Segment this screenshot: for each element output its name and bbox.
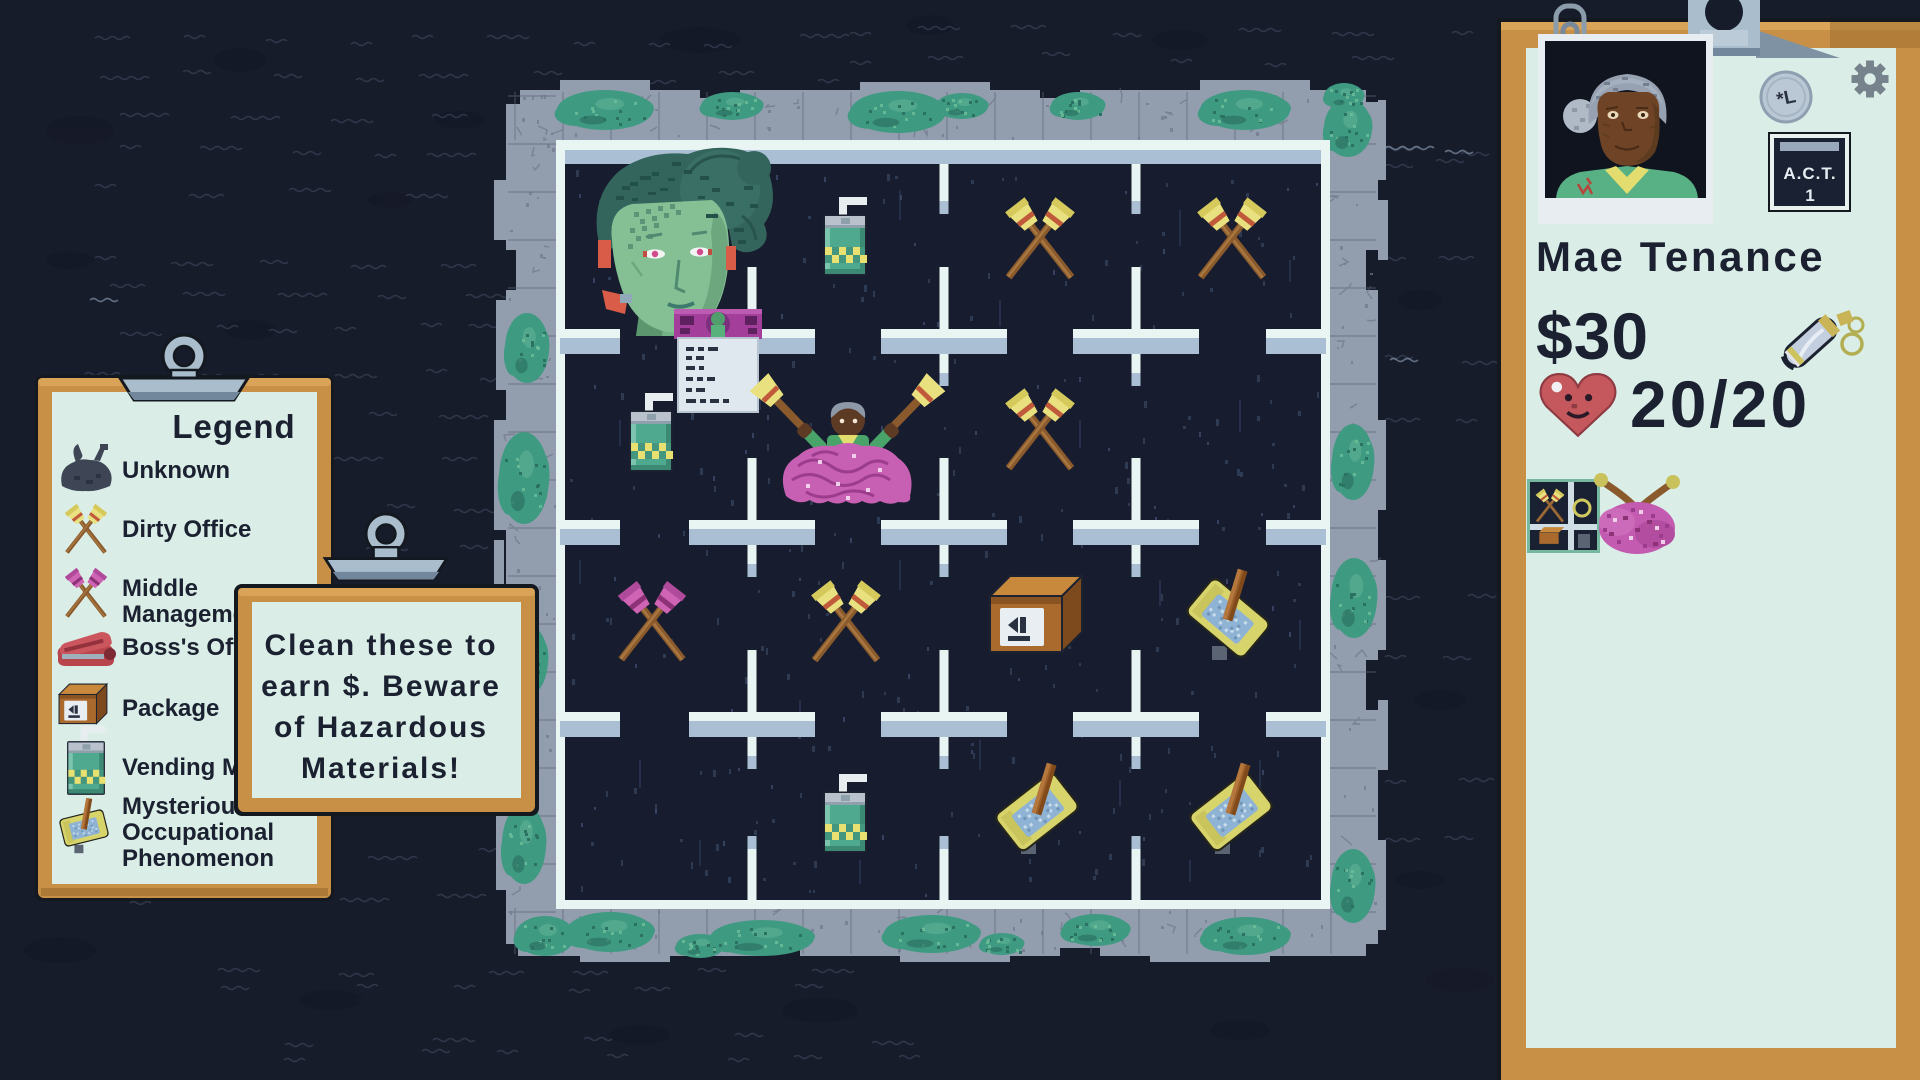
svg-text:Occupational: Occupational	[122, 819, 274, 846]
svg-text:earn $. Beware: earn $. Beware	[261, 670, 501, 703]
svg-text:Legend: Legend	[172, 408, 295, 445]
svg-text:20/20: 20/20	[1630, 367, 1810, 441]
svg-text:Mysterious: Mysterious	[122, 793, 249, 820]
svg-text:A.C.T.: A.C.T.	[1783, 164, 1836, 183]
svg-text:Package: Package	[122, 695, 219, 722]
svg-text:of Hazardous: of Hazardous	[274, 711, 488, 744]
svg-text:Mae Tenance: Mae Tenance	[1536, 233, 1825, 280]
svg-text:Phenomenon: Phenomenon	[122, 845, 274, 872]
svg-text:Clean these to: Clean these to	[264, 629, 497, 662]
svg-text:Unknown: Unknown	[122, 457, 230, 484]
svg-text:Dirty Office: Dirty Office	[122, 516, 251, 543]
svg-text:1: 1	[1805, 186, 1814, 205]
svg-text:$30: $30	[1536, 299, 1649, 373]
svg-text:Middle: Middle	[122, 575, 198, 602]
svg-text:Materials!: Materials!	[301, 752, 461, 785]
